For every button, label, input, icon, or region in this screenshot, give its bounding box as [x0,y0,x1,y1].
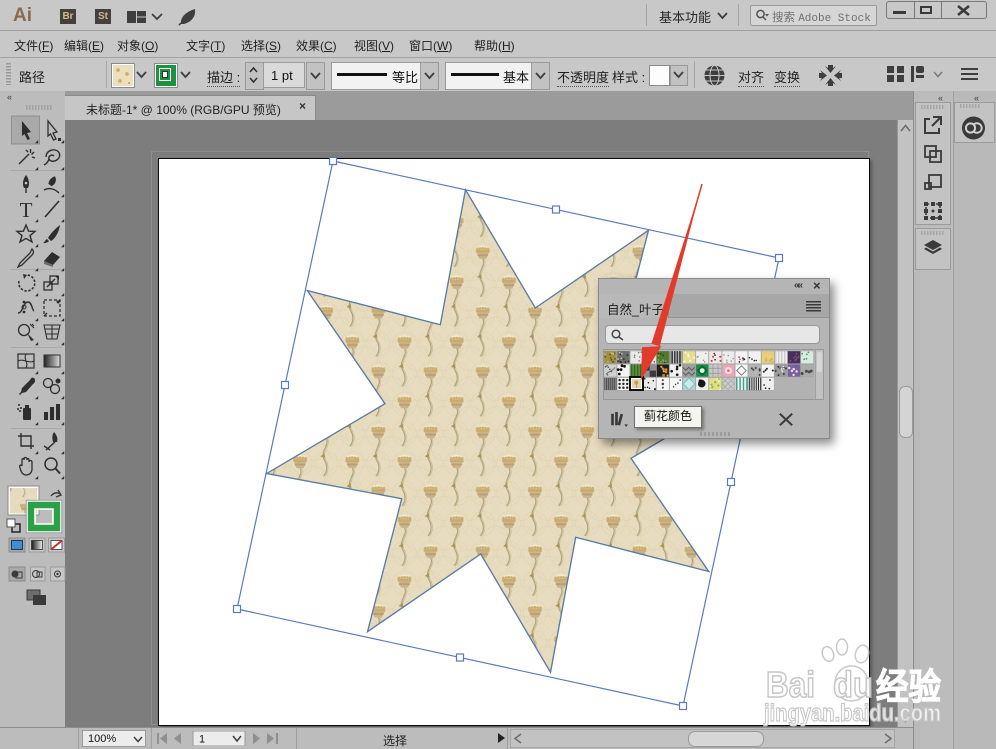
svg-text:1: 1 [199,734,205,746]
svg-text:T: T [20,198,33,222]
